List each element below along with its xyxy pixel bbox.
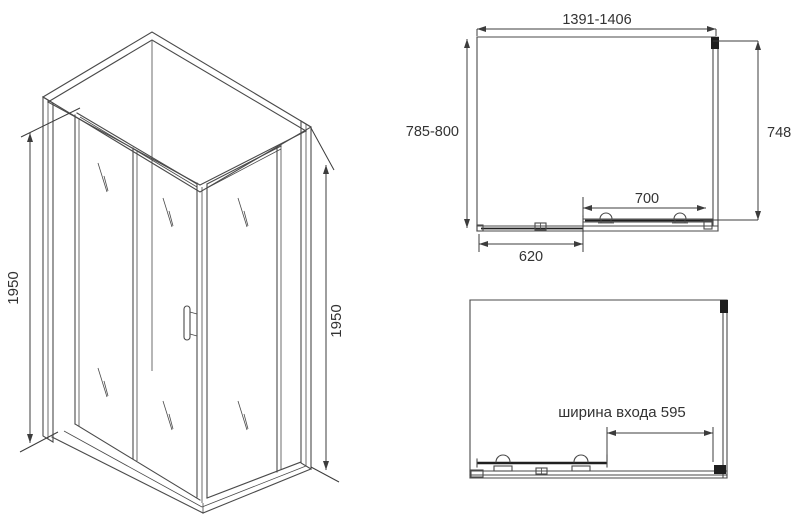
dimension-width: 1391-1406 bbox=[477, 12, 716, 36]
shower-tray bbox=[52, 424, 311, 513]
dimension-side-panel: 748 bbox=[700, 41, 791, 220]
side-panel-label: 748 bbox=[767, 125, 791, 141]
height-right-label: 1950 bbox=[328, 304, 345, 337]
wall-profile-left bbox=[43, 97, 53, 442]
plan-view: 1391-1406 785-800 748 700 bbox=[406, 12, 791, 265]
width-range-label: 1391-1406 bbox=[562, 12, 631, 28]
dimension-height-right: 1950 bbox=[311, 128, 345, 482]
plan-outline bbox=[477, 37, 719, 231]
fixed-panel-label: 620 bbox=[519, 249, 543, 265]
entrance-width-label: ширина входа 595 bbox=[558, 404, 686, 421]
front-outline bbox=[470, 300, 728, 478]
technical-drawing-sheet: 1950 1950 bbox=[0, 0, 800, 515]
right-glass-edge-post bbox=[277, 144, 281, 472]
wall-bracket-top bbox=[711, 37, 719, 49]
glass-top-edges bbox=[77, 113, 281, 188]
height-left-label: 1950 bbox=[5, 271, 22, 304]
door-handle bbox=[184, 306, 197, 340]
dimension-depth: 785-800 bbox=[406, 39, 470, 228]
dimension-entrance-width: ширина входа 595 bbox=[558, 404, 713, 462]
door-track-label: 700 bbox=[635, 191, 659, 207]
plan-bottom-track bbox=[477, 213, 718, 231]
wall-bracket-front bbox=[720, 300, 728, 313]
right-foot-bracket bbox=[714, 465, 726, 474]
dimension-fixed-panel: 620 bbox=[479, 226, 583, 265]
depth-range-label: 785-800 bbox=[406, 124, 459, 140]
shower-enclosure-diagram: 1950 1950 bbox=[0, 0, 800, 515]
front-left-post bbox=[75, 115, 79, 426]
front-view: ширина входа 595 bbox=[470, 300, 728, 478]
dimension-door-track: 700 bbox=[583, 191, 706, 217]
wall-profile-right bbox=[301, 121, 311, 469]
glass-reflections bbox=[98, 163, 248, 430]
isometric-view: 1950 1950 bbox=[5, 32, 345, 513]
door-divider-post bbox=[133, 148, 137, 461]
front-corner-post bbox=[197, 183, 207, 503]
top-frame bbox=[43, 32, 311, 192]
